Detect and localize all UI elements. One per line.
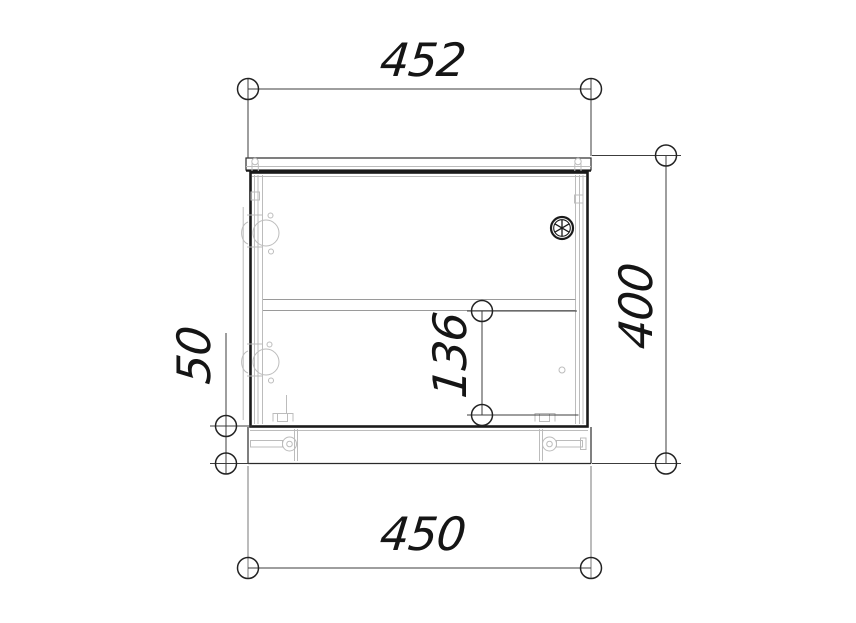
hinge-screw bbox=[267, 342, 272, 347]
dimension-value-inner: 136 bbox=[423, 310, 477, 400]
hinge-screw bbox=[269, 378, 274, 383]
bolt-rod bbox=[557, 441, 583, 448]
dimension-base-height: 50 bbox=[167, 324, 252, 474]
dimension-bottom-width: 450 bbox=[238, 466, 602, 579]
vent-fan-icon bbox=[551, 217, 573, 239]
dimension-overall-height: 400 bbox=[592, 145, 681, 474]
dimension-value-left: 50 bbox=[167, 324, 221, 386]
dimension-shelf-height: 136 bbox=[423, 301, 578, 426]
cabinet-base bbox=[248, 427, 591, 464]
hinge-screw bbox=[268, 213, 273, 218]
anchor-bolt-right bbox=[540, 429, 587, 461]
lid-screw-icon bbox=[575, 158, 581, 164]
cabinet-lid bbox=[246, 158, 591, 171]
bolt-cap bbox=[581, 438, 587, 450]
hinge-knuckle bbox=[242, 351, 248, 373]
vent-spokes bbox=[555, 220, 569, 237]
bolt-head-center bbox=[287, 441, 293, 447]
hinge-cup bbox=[253, 349, 279, 375]
hinge-bottom bbox=[242, 342, 279, 383]
bottom-bracket bbox=[273, 414, 293, 422]
hinge-cup bbox=[253, 220, 279, 246]
dimension-value-bottom: 450 bbox=[377, 507, 467, 561]
dimension-value-right: 400 bbox=[609, 261, 663, 351]
lid-screw-icon bbox=[252, 158, 258, 164]
shelf-lines bbox=[263, 300, 576, 311]
hinge-screw bbox=[269, 249, 274, 254]
extension-lines bbox=[467, 311, 579, 415]
extension-lines bbox=[248, 78, 591, 158]
drawing-canvas: 452 400 136 50 450 bbox=[0, 0, 856, 623]
bolt-head bbox=[543, 437, 557, 451]
bolt-head-center bbox=[547, 441, 553, 447]
lid-outline bbox=[246, 158, 591, 170]
technical-drawing: 452 400 136 50 450 bbox=[0, 0, 856, 623]
bolt-bracket-lines bbox=[540, 429, 543, 461]
dimension-top-width: 452 bbox=[238, 33, 602, 158]
bottom-bracket-pad bbox=[278, 414, 288, 422]
anchor-bolt-left bbox=[251, 429, 298, 461]
dimension-value-top: 452 bbox=[377, 33, 467, 87]
hinge-top bbox=[242, 213, 279, 254]
bolt-rod bbox=[251, 441, 283, 448]
cabinet-body bbox=[243, 173, 587, 427]
interior-hole bbox=[559, 367, 565, 373]
hinge-knuckle bbox=[242, 222, 248, 244]
